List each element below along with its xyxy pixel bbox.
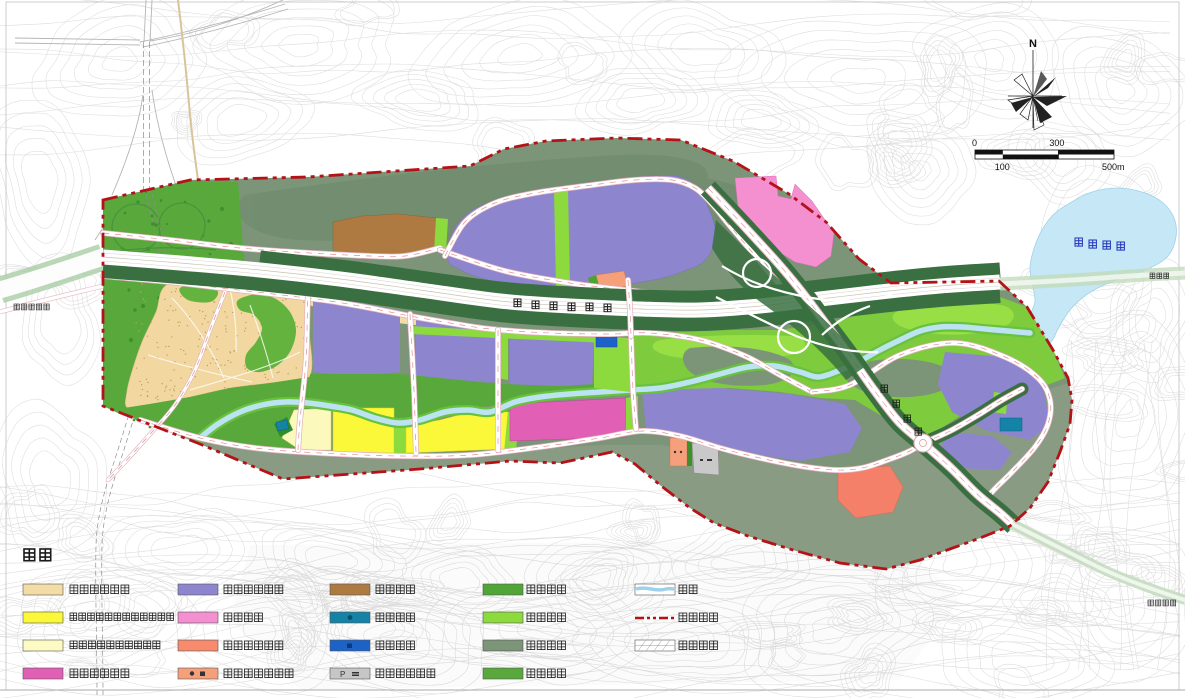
svg-text:0: 0 <box>972 138 977 148</box>
svg-text:300: 300 <box>1049 138 1064 148</box>
svg-text:P: P <box>340 670 345 679</box>
svg-text:N: N <box>1029 38 1037 50</box>
svg-text:500m: 500m <box>1102 162 1125 172</box>
svg-text:100: 100 <box>995 162 1010 172</box>
